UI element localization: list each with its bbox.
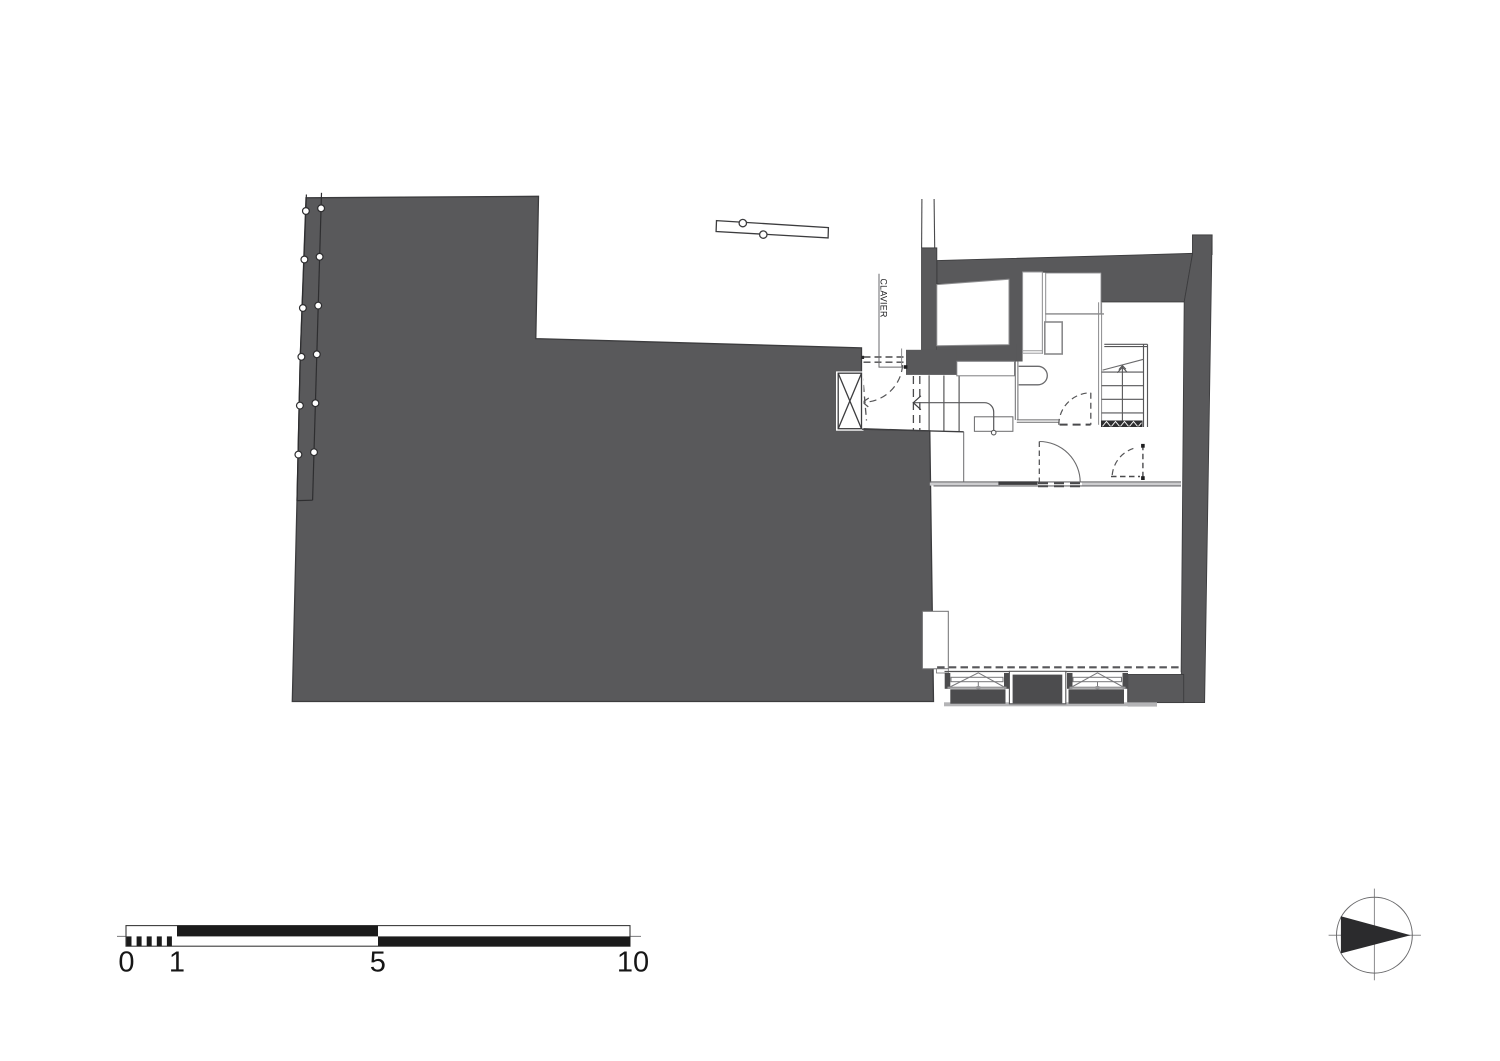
svg-text:10: 10	[617, 947, 649, 979]
svg-text:1: 1	[169, 947, 185, 979]
svg-text:0: 0	[118, 947, 134, 979]
svg-text:5: 5	[370, 947, 386, 979]
svg-text:CLAVIER: CLAVIER	[879, 279, 889, 318]
